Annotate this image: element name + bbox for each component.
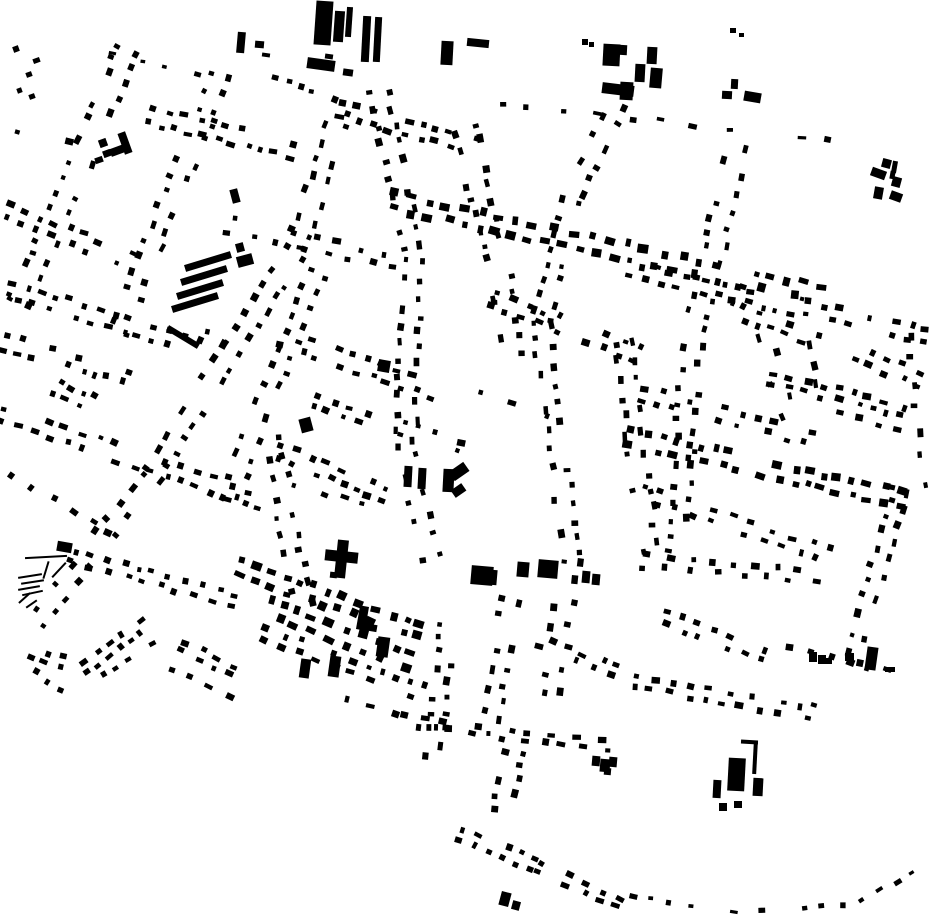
- figure-ground-map: [0, 0, 930, 924]
- street-buildings: [0, 43, 929, 914]
- building-footprints-layer: [0, 0, 930, 924]
